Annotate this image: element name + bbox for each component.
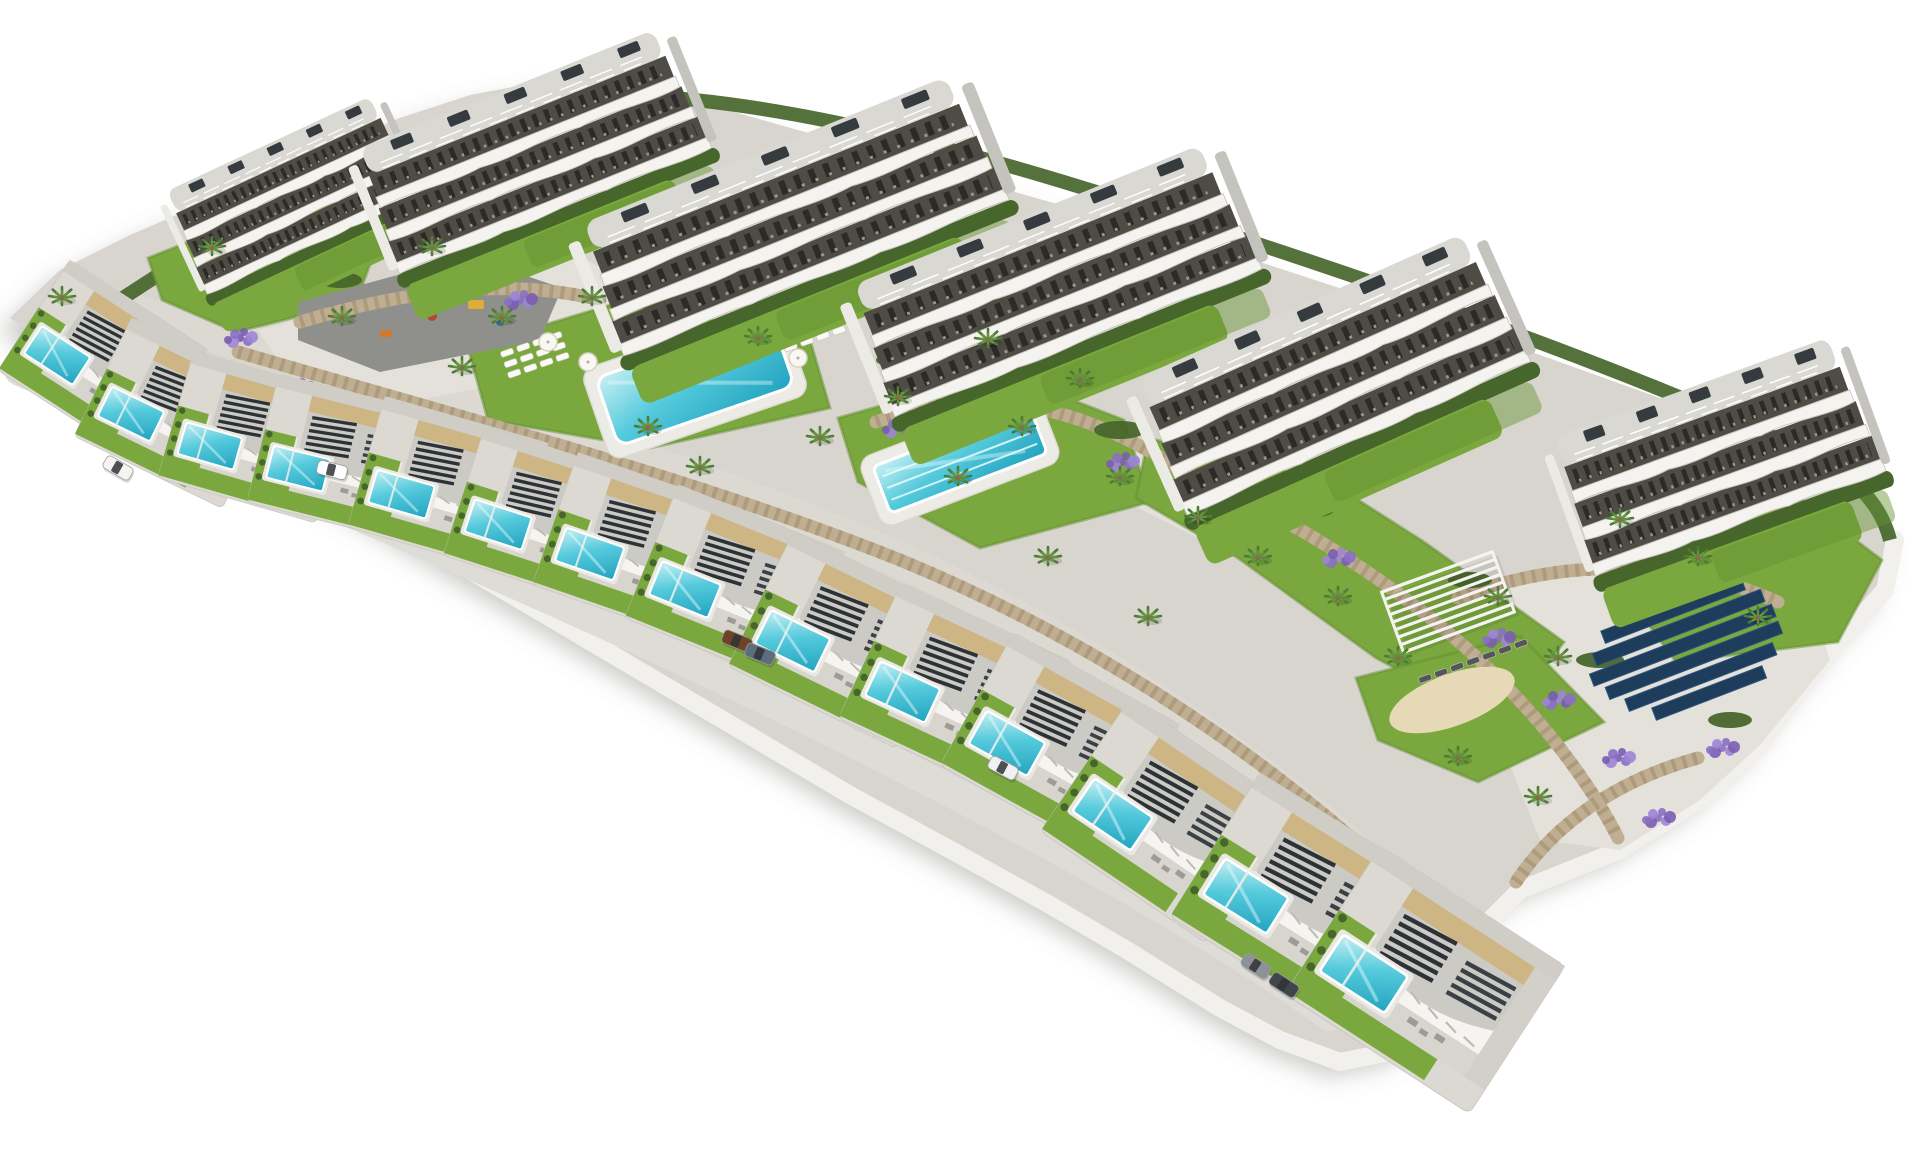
palm-tree <box>1685 547 1712 565</box>
palm-tree <box>1135 607 1162 625</box>
palm-tree <box>1107 467 1134 485</box>
palm-tree <box>419 237 446 255</box>
palm-tree <box>885 387 912 405</box>
palm-tree <box>745 327 772 345</box>
site-plan-render <box>0 0 1920 1152</box>
palm-tree <box>687 457 714 475</box>
umbrella <box>789 349 807 367</box>
umbrella <box>539 333 557 351</box>
palm-tree <box>579 287 606 305</box>
palm-tree <box>635 417 662 435</box>
palm-tree <box>199 237 226 255</box>
palm-tree <box>1525 787 1552 805</box>
hedge <box>1708 712 1752 728</box>
play-equipment <box>468 300 484 309</box>
palm-tree <box>807 427 834 445</box>
aerial-render-residential-development <box>0 0 1920 1152</box>
palm-tree <box>449 357 476 375</box>
palm-tree <box>1245 547 1272 565</box>
palm-tree <box>1067 369 1094 387</box>
palm-tree <box>1485 587 1512 605</box>
palm-tree <box>1745 607 1772 625</box>
palm-tree <box>1607 509 1634 527</box>
palm-tree <box>1185 507 1212 525</box>
palm-tree <box>489 307 516 325</box>
palm-tree <box>1325 587 1352 605</box>
palm-tree <box>329 307 356 325</box>
umbrella <box>579 353 597 371</box>
palm-tree <box>975 329 1002 347</box>
palm-tree <box>945 467 972 485</box>
palm-tree <box>1009 417 1036 435</box>
play-equipment <box>380 330 392 337</box>
palm-tree <box>1385 647 1412 665</box>
palm-tree <box>1445 747 1472 765</box>
palm-tree <box>1035 547 1062 565</box>
palm-tree <box>1545 647 1572 665</box>
palm-tree <box>49 287 76 305</box>
